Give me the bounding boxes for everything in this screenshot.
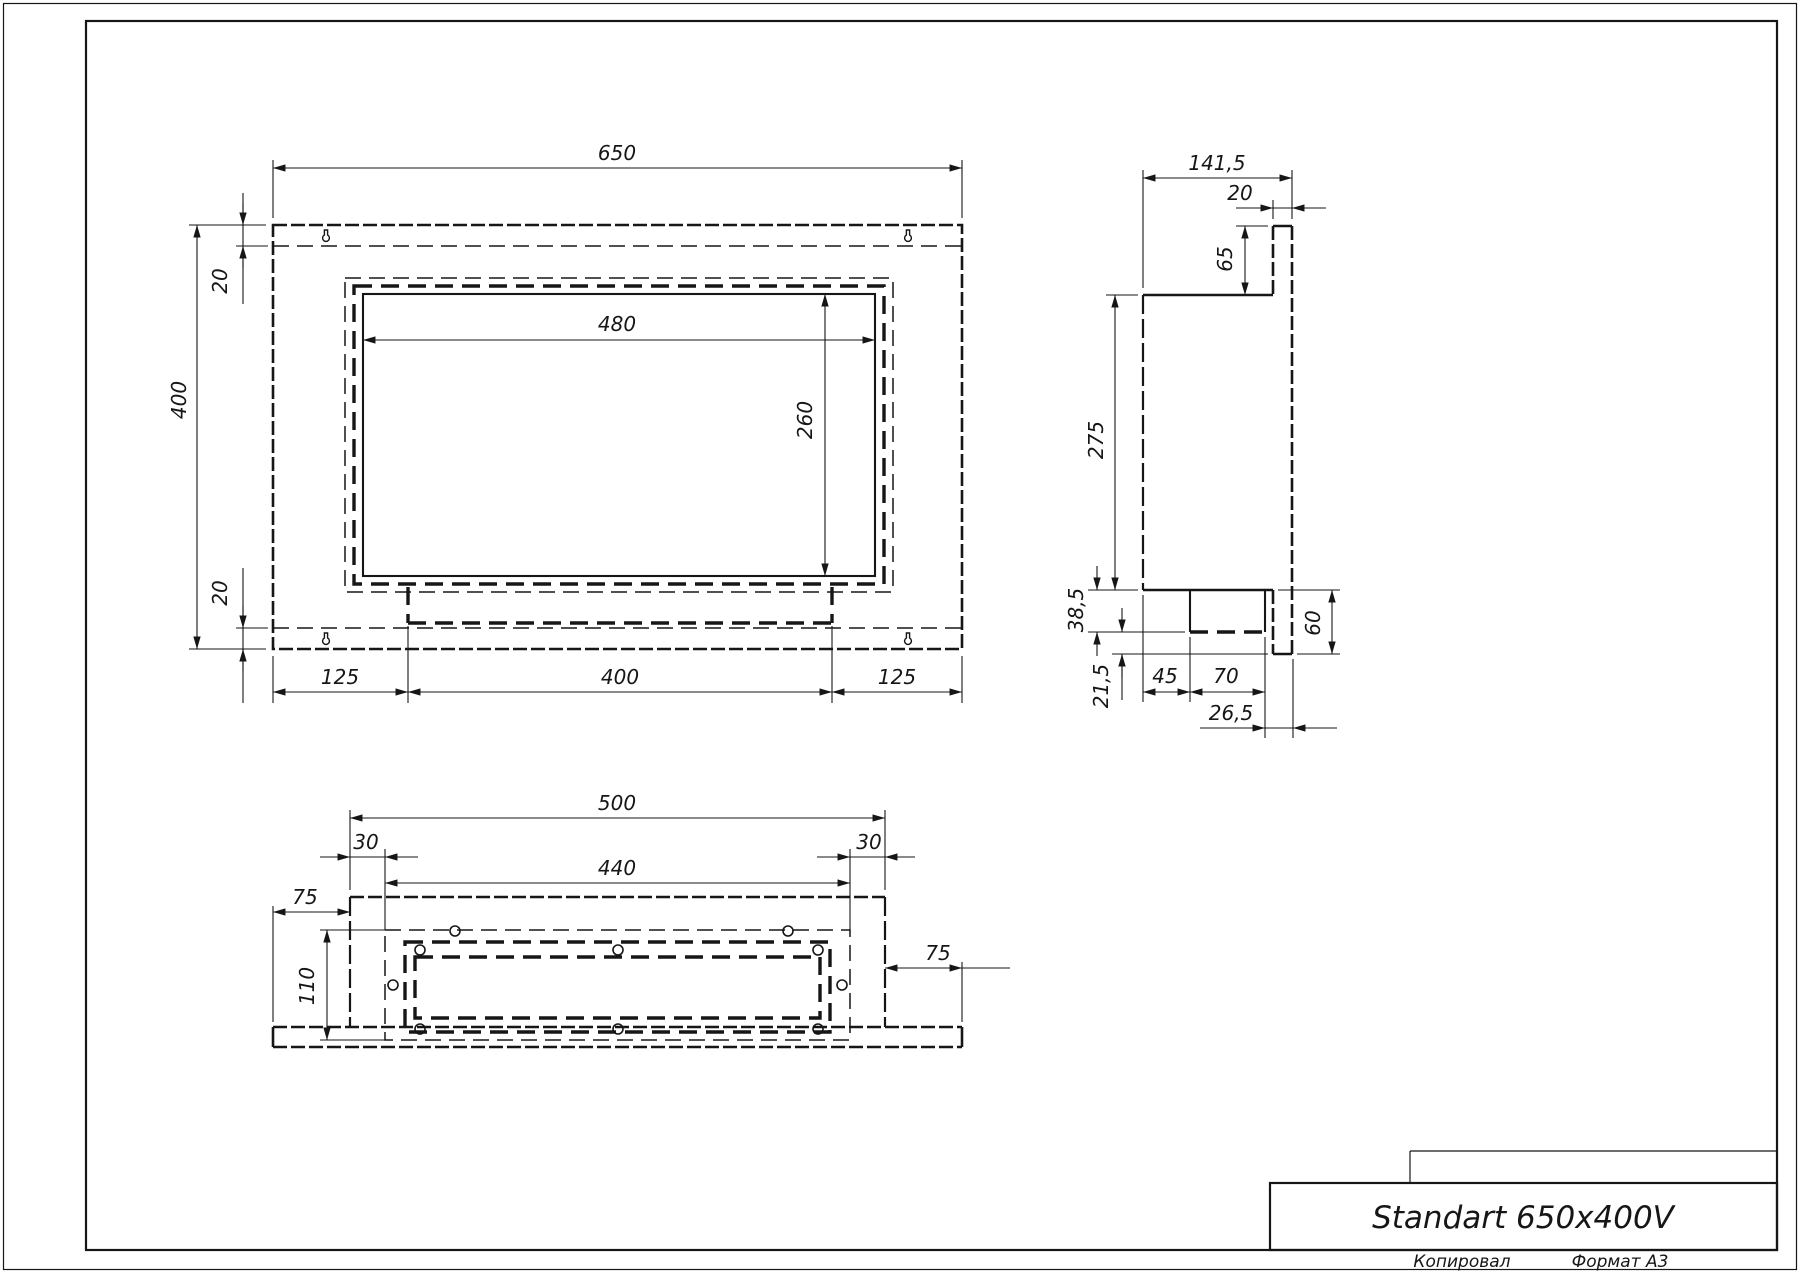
side-view: 141,5 20 65 275 38,5 xyxy=(1064,151,1340,738)
title-block: Standart 650x400V xyxy=(1270,1151,1777,1250)
side-dim-burner-depth-label: 70 xyxy=(1213,664,1238,688)
side-dim-burner-drop: 38,5 xyxy=(1064,566,1185,656)
front-dim-top-inset: 20 xyxy=(208,193,268,304)
side-dim-lower-drop-label: 21,5 xyxy=(1089,664,1113,709)
bottom-view: 500 30 30 440 75 xyxy=(273,791,1010,1047)
front-dim-bottom-inset: 20 xyxy=(208,568,268,703)
drawing-sheet: Standart 650x400V Копировал Формат А3 xyxy=(0,0,1800,1273)
side-dim-plate-thickness-label: 20 xyxy=(1227,181,1252,205)
side-view-outline xyxy=(1143,226,1292,654)
side-dim-front-offset-label: 45 xyxy=(1152,664,1177,688)
bottom-dim-flange-left-label: 75 xyxy=(292,885,317,909)
keyhole-icon xyxy=(323,230,330,241)
bottom-dim-tray-depth: 110 xyxy=(295,930,385,1040)
front-dim-bottom-right-label: 125 xyxy=(878,665,916,689)
front-dim-bottom-inset-label: 20 xyxy=(208,580,232,605)
screw-hole xyxy=(613,1024,623,1034)
drawing-frame xyxy=(86,21,1777,1250)
bottom-dim-flange-right: 75 xyxy=(885,941,1010,1022)
front-dim-opening-height: 260 xyxy=(793,294,825,576)
screw-hole xyxy=(613,945,623,955)
front-dim-top-inset-label: 20 xyxy=(208,268,232,293)
screw-hole xyxy=(837,980,847,990)
bottom-dim-inset-right: 30 xyxy=(817,830,915,930)
screw-hole xyxy=(415,945,425,955)
front-dim-opening-width: 480 xyxy=(363,312,875,340)
side-dim-top-to-body: 65 xyxy=(1213,226,1268,295)
front-dim-opening-width-label: 480 xyxy=(598,312,636,336)
bottom-dim-tray-width: 440 xyxy=(385,856,850,883)
side-dim-top-to-body-label: 65 xyxy=(1213,246,1237,271)
bottom-screw-holes xyxy=(388,926,847,1034)
front-dim-opening-height-label: 260 xyxy=(793,401,817,439)
footer-copied-label: Копировал xyxy=(1413,1252,1510,1272)
footer-format-label: Формат А3 xyxy=(1572,1252,1669,1272)
screw-hole xyxy=(783,926,793,936)
keyhole-icon xyxy=(905,230,912,241)
bottom-dim-body-width-label: 500 xyxy=(598,791,636,815)
front-view: 650 400 20 20 480 xyxy=(167,141,962,703)
screw-hole xyxy=(450,926,460,936)
side-dim-plate-below-body-label: 60 xyxy=(1301,610,1325,635)
side-dim-plate-thickness: 20 xyxy=(1227,181,1326,219)
technical-drawing: Standart 650x400V Копировал Формат А3 xyxy=(0,0,1800,1273)
bottom-dim-inset-left-label: 30 xyxy=(353,830,378,854)
front-dim-bottom-left-label: 125 xyxy=(321,665,359,689)
side-dim-body-height: 275 xyxy=(1084,295,1138,590)
bottom-dim-tray-depth-label: 110 xyxy=(295,967,319,1005)
side-dim-back-offset-label: 26,5 xyxy=(1209,701,1254,725)
keyhole-slots xyxy=(323,230,912,644)
title-block-title: Standart 650x400V xyxy=(1372,1200,1677,1236)
side-dim-lower-drop: 21,5 xyxy=(1089,608,1268,708)
front-dim-width: 650 xyxy=(273,141,962,218)
bottom-dim-tray-width-label: 440 xyxy=(598,856,636,880)
bottom-dim-flange-right-label: 75 xyxy=(925,941,950,965)
side-dim-burner-drop-label: 38,5 xyxy=(1064,588,1088,633)
screw-hole xyxy=(813,945,823,955)
bottom-dim-inset-right-label: 30 xyxy=(856,830,881,854)
screw-hole xyxy=(388,980,398,990)
side-dim-body-height-label: 275 xyxy=(1084,421,1108,459)
keyhole-icon xyxy=(323,633,330,644)
front-dim-height-label: 400 xyxy=(167,381,191,419)
side-dim-plate-below-body: 60 xyxy=(1278,590,1340,654)
bottom-dim-inset-left: 30 xyxy=(320,830,418,930)
keyhole-icon xyxy=(905,633,912,644)
side-dim-total-depth-label: 141,5 xyxy=(1188,151,1245,175)
front-dim-bottom-row: 125 400 125 xyxy=(273,626,962,703)
front-dim-width-label: 650 xyxy=(598,141,636,165)
front-dim-bottom-center-label: 400 xyxy=(601,665,639,689)
